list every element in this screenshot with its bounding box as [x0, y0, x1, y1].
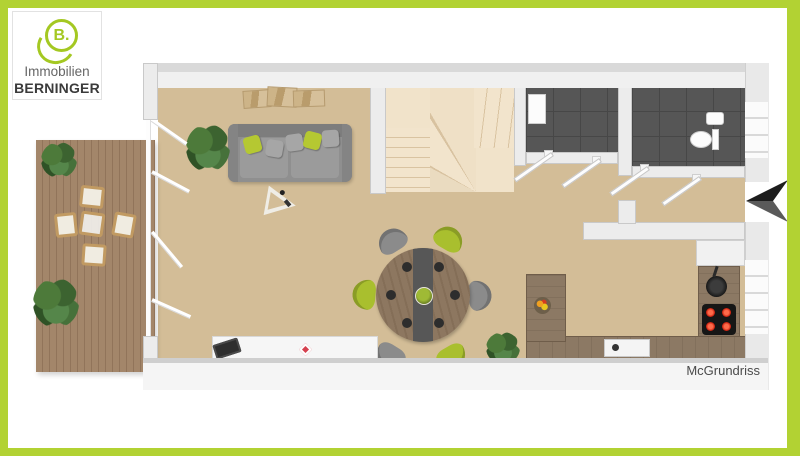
toilet-bowl	[690, 131, 712, 148]
burner-1	[706, 308, 715, 317]
wall-west-upper	[143, 63, 158, 120]
burner-4	[722, 322, 731, 331]
window-kitchen	[745, 260, 768, 334]
kitchen-partition-stub	[618, 200, 636, 224]
staircase-lower-flight	[386, 128, 432, 192]
washbasin	[706, 112, 724, 125]
toilet-tank	[712, 129, 719, 150]
frame-left	[0, 0, 8, 456]
kitchen-faucet	[612, 344, 619, 351]
entrance-arrow-icon	[745, 178, 789, 224]
bathroom-divider-wall	[618, 86, 632, 176]
kitchen-cabinet	[696, 240, 745, 266]
stair-wall-east	[514, 86, 526, 166]
outdoor-chair-east	[111, 211, 137, 238]
burner-2	[722, 308, 731, 317]
staircase-upper-flight	[474, 86, 514, 148]
stair-wall-west	[370, 86, 386, 194]
fruit-bowl	[534, 297, 551, 314]
pillow-gray-2	[285, 133, 304, 152]
plate-5	[402, 318, 412, 328]
company-logo: B. Immobilien BERNINGER	[12, 11, 102, 100]
plate-6	[434, 318, 444, 328]
living-room-plant	[186, 124, 230, 172]
logo-circle-icon: B.	[45, 19, 78, 52]
outdoor-chair-north	[79, 185, 105, 209]
staircase-winders	[430, 86, 476, 192]
wc-room-floor	[632, 86, 745, 166]
sofa-arm-right	[342, 124, 352, 182]
wall-art-panel-3	[293, 89, 326, 107]
plate-2	[402, 262, 412, 272]
pillow-gray-1	[265, 139, 285, 159]
shower-tray	[528, 94, 546, 124]
outdoor-chair-west	[54, 212, 78, 238]
floorplan-render: B. Immobilien BERNINGER	[0, 0, 800, 456]
wall-north	[143, 63, 768, 88]
window-bath	[745, 102, 768, 158]
frying-pan	[706, 276, 727, 297]
logo-mark-icon: B.	[34, 19, 80, 63]
frame-top	[0, 0, 800, 8]
wall-west-lower	[143, 336, 158, 360]
terrace-plant-top	[41, 142, 77, 178]
company-name-line1: Immobilien	[24, 64, 89, 80]
watermark: McGrundriss	[656, 363, 760, 378]
table-centerpiece	[415, 287, 433, 305]
outdoor-chair-south	[81, 243, 106, 267]
frame-right	[787, 0, 800, 456]
plate-4	[450, 290, 460, 300]
pillow-gray-3	[321, 129, 339, 147]
plate-3	[386, 290, 396, 300]
cooktop	[702, 304, 736, 335]
lounge-chair	[264, 186, 299, 221]
terrace-plant-bottom	[33, 278, 79, 328]
kitchen-sink	[604, 339, 650, 357]
outdoor-table	[78, 210, 105, 237]
kitchen-partition-wall	[583, 222, 745, 240]
plate-1	[434, 262, 444, 272]
burner-3	[706, 322, 715, 331]
logo-letter: B.	[54, 28, 70, 44]
glass-door-track	[146, 116, 151, 342]
company-name-line2: BERNINGER	[14, 80, 100, 96]
frame-bottom	[0, 448, 800, 456]
